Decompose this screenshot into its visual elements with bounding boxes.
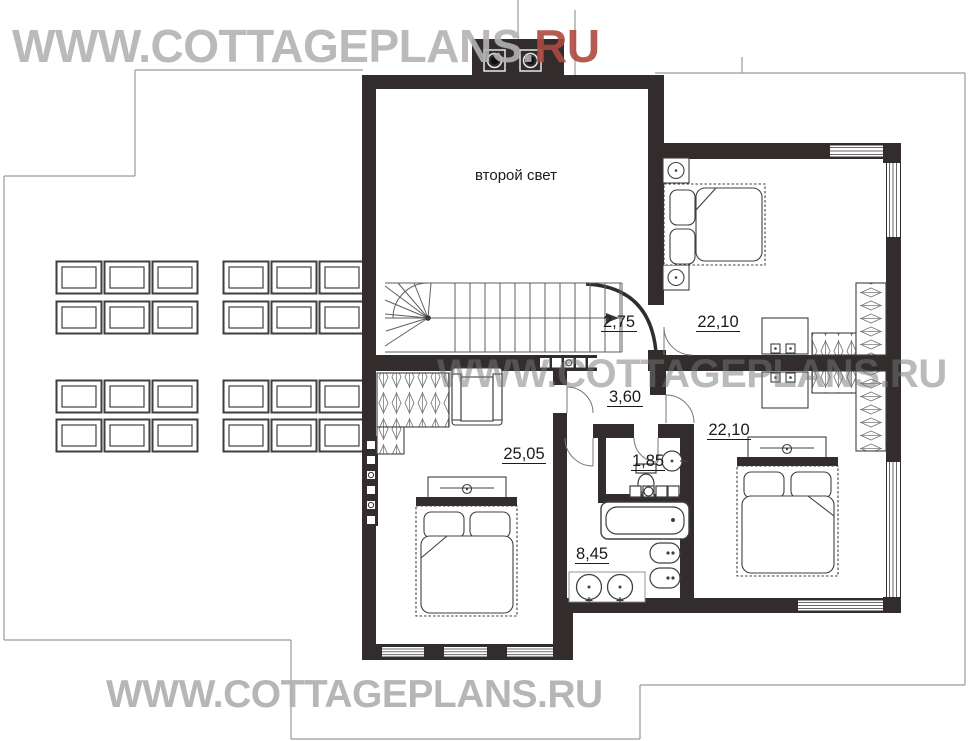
bed-master: [416, 477, 517, 616]
wc-counter: [630, 486, 679, 497]
watermark-bottom: WWW.COTTAGEPLANS.RU: [106, 673, 603, 716]
area-label-master: 25,05: [503, 445, 544, 463]
door-bedroom-bottom-right: [666, 395, 694, 423]
wall-shelf-strip: [364, 436, 378, 526]
roof-skylights: [57, 262, 365, 452]
bed-top-right: [663, 158, 765, 290]
watermark-top: WWW.COTTAGEPLANS.RU: [12, 20, 600, 72]
wardrobe-master-corner: [377, 427, 404, 454]
headboard-bar: [737, 457, 838, 466]
staircase: [385, 283, 622, 352]
towel-radiators: [650, 543, 680, 588]
dresser-top-right: [762, 318, 808, 354]
floorplan-page: второй свет 2,75 22,10 3,60 25,05 1,85 8…: [0, 0, 972, 741]
wardrobe-wall-tr: [856, 283, 886, 355]
headboard-bar: [416, 497, 517, 506]
bed-bottom-right: [737, 437, 838, 576]
area-label-bedroom-bottom-right: 22,10: [708, 421, 749, 439]
door-bedroom-top-right: [664, 327, 692, 355]
door-bathroom: [565, 438, 593, 466]
floor-plan-svg: второй свет 2,75 22,10 3,60 25,05 1,85 8…: [0, 0, 972, 741]
area-label-bathroom: 8,45: [576, 545, 608, 563]
area-label-wc: 1,85: [632, 452, 664, 470]
watermark-middle: WWW.COTTAGEPLANS.RU: [437, 352, 947, 396]
area-label-bedroom-top-right: 22,10: [697, 313, 738, 331]
area-label-landing: 2,75: [603, 313, 635, 331]
double-sinks: [569, 572, 645, 604]
label-second-light: второй свет: [475, 167, 557, 184]
bathtub: [601, 502, 689, 539]
bathroom-fixtures: [569, 451, 689, 604]
